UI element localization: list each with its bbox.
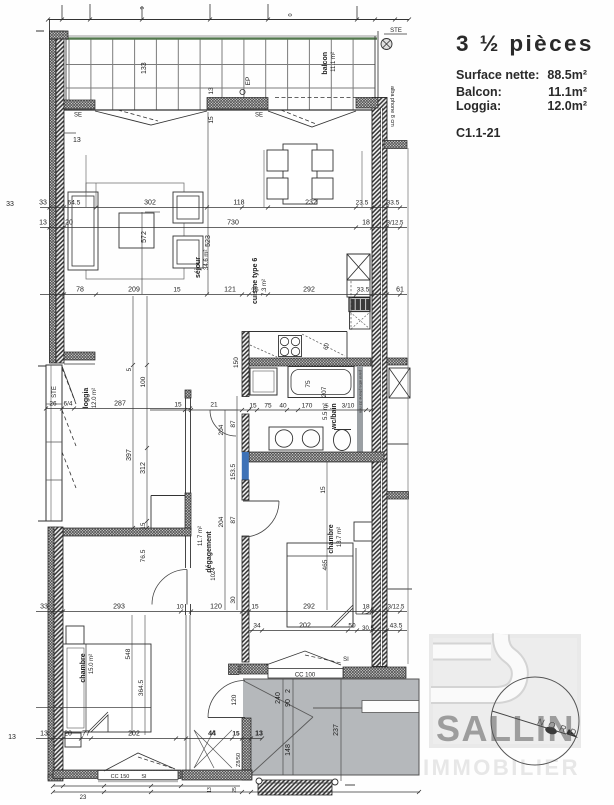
svg-text:397: 397 bbox=[126, 449, 133, 461]
svg-text:34: 34 bbox=[253, 623, 261, 630]
svg-text:64.5: 64.5 bbox=[68, 200, 81, 207]
svg-text:78: 78 bbox=[76, 287, 84, 294]
svg-text:240: 240 bbox=[275, 692, 282, 704]
svg-text:465: 465 bbox=[322, 559, 329, 570]
svg-text:120: 120 bbox=[210, 604, 222, 611]
svg-text:204: 204 bbox=[218, 516, 225, 527]
svg-text:40: 40 bbox=[279, 403, 287, 410]
svg-text:548: 548 bbox=[125, 648, 132, 659]
svg-text:IMMOBILIER: IMMOBILIER bbox=[423, 755, 580, 780]
svg-text:26: 26 bbox=[49, 401, 57, 408]
svg-text:287: 287 bbox=[114, 401, 126, 408]
svg-text:chambre: chambre bbox=[80, 653, 87, 682]
svg-text:11.7 m²: 11.7 m² bbox=[198, 526, 204, 546]
svg-text:13: 13 bbox=[39, 220, 47, 227]
svg-text:3/12.5: 3/12.5 bbox=[387, 221, 404, 227]
svg-text:13: 13 bbox=[73, 137, 81, 144]
svg-text:120: 120 bbox=[231, 694, 238, 705]
svg-text:75: 75 bbox=[305, 380, 312, 388]
svg-text:5: 5 bbox=[325, 404, 328, 410]
svg-text:33.5: 33.5 bbox=[387, 200, 400, 207]
svg-text:15: 15 bbox=[232, 731, 240, 738]
svg-text:292: 292 bbox=[303, 287, 315, 294]
svg-text:cuisine type 6: cuisine type 6 bbox=[252, 258, 259, 304]
svg-text:STE: STE bbox=[52, 386, 58, 398]
svg-text:237: 237 bbox=[333, 724, 340, 736]
svg-text:dégagement: dégagement bbox=[206, 531, 213, 573]
svg-text:15: 15 bbox=[141, 522, 147, 529]
svg-text:34.6 m²: 34.6 m² bbox=[204, 250, 210, 270]
svg-text:100: 100 bbox=[140, 376, 147, 387]
svg-text:loggia: loggia bbox=[83, 388, 90, 409]
svg-text:232: 232 bbox=[305, 200, 317, 207]
svg-text:Balcon:: Balcon: bbox=[456, 85, 502, 99]
svg-text:75: 75 bbox=[264, 403, 272, 410]
svg-text:730: 730 bbox=[227, 220, 239, 227]
svg-text:15: 15 bbox=[320, 486, 327, 494]
svg-text:33.5: 33.5 bbox=[357, 287, 370, 294]
svg-text:13.7 m²: 13.7 m² bbox=[337, 527, 343, 547]
svg-text:SE: SE bbox=[74, 113, 82, 119]
svg-text:170: 170 bbox=[302, 403, 313, 410]
svg-text:13: 13 bbox=[255, 731, 263, 738]
svg-text:23: 23 bbox=[80, 795, 87, 800]
svg-text:SE: SE bbox=[255, 113, 263, 119]
svg-text:15: 15 bbox=[251, 287, 259, 294]
svg-text:13: 13 bbox=[8, 734, 16, 741]
svg-text:30: 30 bbox=[230, 596, 237, 604]
svg-text:chambre: chambre bbox=[328, 524, 335, 553]
svg-text:wc/bain: wc/bain bbox=[331, 403, 338, 430]
svg-text:18: 18 bbox=[362, 220, 370, 227]
svg-text:SI: SI bbox=[141, 774, 147, 780]
svg-text:202: 202 bbox=[299, 623, 311, 630]
svg-text:20: 20 bbox=[64, 731, 72, 738]
svg-text:15: 15 bbox=[174, 402, 182, 409]
svg-text:12.0 m²: 12.0 m² bbox=[92, 388, 98, 408]
svg-text:7.3 m²: 7.3 m² bbox=[262, 279, 268, 296]
svg-text:13: 13 bbox=[208, 87, 215, 95]
svg-text:77: 77 bbox=[82, 731, 90, 738]
svg-text:44: 44 bbox=[208, 731, 216, 738]
svg-text:3 ½ pièces: 3 ½ pièces bbox=[456, 31, 594, 56]
svg-text:Loggia:: Loggia: bbox=[456, 99, 501, 113]
svg-text:3/12.5: 3/12.5 bbox=[388, 605, 405, 611]
svg-text:293: 293 bbox=[113, 604, 125, 611]
svg-text:121: 121 bbox=[224, 287, 236, 294]
svg-text:11.1 m²: 11.1 m² bbox=[331, 52, 337, 72]
svg-text:6/4: 6/4 bbox=[63, 401, 72, 408]
svg-text:88.5m²: 88.5m² bbox=[547, 68, 587, 82]
svg-text:paroi alba phone 33 mm: paroi alba phone 33 mm bbox=[359, 370, 364, 414]
svg-text:10: 10 bbox=[176, 604, 184, 611]
svg-text:SI: SI bbox=[343, 657, 349, 663]
svg-text:13: 13 bbox=[207, 787, 213, 793]
svg-text:9: 9 bbox=[140, 6, 146, 9]
svg-text:EP: EP bbox=[245, 77, 252, 86]
svg-text:12.0m²: 12.0m² bbox=[547, 99, 587, 113]
svg-text:15: 15 bbox=[208, 116, 215, 124]
svg-text:13: 13 bbox=[40, 731, 48, 738]
svg-text:302: 302 bbox=[144, 200, 156, 207]
svg-text:1024: 1024 bbox=[211, 567, 217, 581]
svg-text:2: 2 bbox=[285, 689, 292, 693]
svg-text:133: 133 bbox=[141, 62, 148, 74]
svg-text:292: 292 bbox=[303, 604, 315, 611]
svg-text:43.5: 43.5 bbox=[390, 623, 403, 630]
svg-text:76.5: 76.5 bbox=[140, 549, 147, 562]
svg-text:Z8/50: Z8/50 bbox=[236, 753, 242, 767]
svg-text:18: 18 bbox=[362, 604, 370, 611]
svg-text:364.5: 364.5 bbox=[138, 679, 145, 696]
svg-text:90: 90 bbox=[285, 699, 292, 707]
svg-text:87: 87 bbox=[230, 516, 237, 524]
svg-text:3/10: 3/10 bbox=[342, 403, 355, 410]
svg-text:15: 15 bbox=[173, 287, 181, 294]
svg-text:523: 523 bbox=[205, 235, 212, 247]
svg-text:11.1m²: 11.1m² bbox=[548, 85, 587, 99]
svg-text:33: 33 bbox=[39, 200, 47, 207]
svg-text:33: 33 bbox=[6, 201, 14, 208]
svg-text:15: 15 bbox=[251, 604, 259, 611]
svg-text:alba phone 8 cm: alba phone 8 cm bbox=[389, 86, 395, 127]
svg-text:CC 150: CC 150 bbox=[111, 774, 130, 780]
svg-text:209: 209 bbox=[128, 287, 140, 294]
svg-text:61: 61 bbox=[396, 287, 404, 294]
svg-text:20: 20 bbox=[65, 220, 73, 227]
svg-text:25: 25 bbox=[232, 787, 238, 793]
svg-text:150: 150 bbox=[233, 357, 240, 368]
svg-text:202: 202 bbox=[128, 731, 140, 738]
svg-text:0: 0 bbox=[288, 13, 294, 16]
svg-text:15.0 m²: 15.0 m² bbox=[89, 654, 95, 674]
svg-text:séjour: séjour bbox=[195, 257, 202, 278]
svg-text:148: 148 bbox=[285, 744, 292, 756]
svg-text:21: 21 bbox=[210, 402, 218, 409]
svg-text:87: 87 bbox=[230, 420, 237, 428]
svg-text:312: 312 bbox=[140, 462, 147, 474]
svg-text:207: 207 bbox=[321, 386, 328, 397]
svg-text:STE: STE bbox=[390, 28, 402, 34]
svg-text:C1.1-21: C1.1-21 bbox=[456, 126, 501, 140]
svg-text:30.5: 30.5 bbox=[362, 626, 374, 632]
svg-text:Surface nette:: Surface nette: bbox=[456, 68, 539, 82]
svg-text:balcon: balcon bbox=[322, 52, 329, 75]
svg-text:33: 33 bbox=[40, 604, 48, 611]
svg-text:50: 50 bbox=[348, 623, 356, 630]
svg-text:118: 118 bbox=[233, 200, 244, 207]
svg-text:CC 100: CC 100 bbox=[295, 673, 316, 679]
svg-text:153.5: 153.5 bbox=[230, 463, 237, 480]
